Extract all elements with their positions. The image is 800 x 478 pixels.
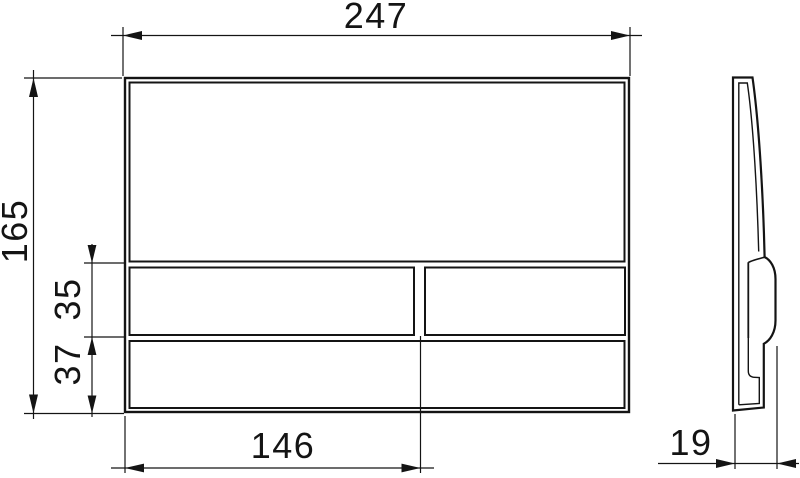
- side-view: [733, 78, 776, 411]
- front-view-bottom-panel: [130, 341, 625, 408]
- dim-146-arrow-left: [125, 464, 144, 473]
- dim-19-arrow-right: [777, 459, 796, 468]
- dim-35-arrow-top: [88, 245, 97, 263]
- side-view-button-top-join: [748, 257, 764, 262]
- dim-165-arrow-top: [29, 78, 38, 97]
- dim-37-arrow-bottom: [88, 396, 97, 414]
- drawing-geometry: [0, 0, 800, 478]
- dimension-35-37: [84, 244, 126, 417]
- front-view-outline: [125, 78, 629, 412]
- dim-label-button-row-height: 35: [50, 277, 86, 320]
- dim-19-arrow-left: [716, 459, 735, 468]
- dim-label-large-button-width: 146: [251, 428, 316, 464]
- technical-drawing-canvas: 247 165 35 37 146 19: [0, 0, 800, 478]
- dim-247-arrow-left: [123, 31, 142, 40]
- side-view-inner-step: [739, 338, 760, 405]
- front-view: [125, 78, 629, 412]
- dim-146-arrow-right: [402, 464, 421, 473]
- front-view-button-small: [425, 268, 625, 336]
- dim-label-overall-width: 247: [344, 0, 409, 34]
- front-view-button-large: [130, 268, 415, 336]
- front-view-top-panel: [130, 83, 625, 262]
- dim-165-arrow-bottom: [29, 395, 38, 414]
- dim-label-bottom-row-height: 37: [50, 342, 86, 385]
- dim-247-arrow-right: [611, 31, 630, 40]
- dim-label-depth: 19: [669, 425, 712, 461]
- dim-35-37-arrow-shared: [88, 337, 97, 355]
- dim-label-overall-height: 165: [0, 199, 33, 264]
